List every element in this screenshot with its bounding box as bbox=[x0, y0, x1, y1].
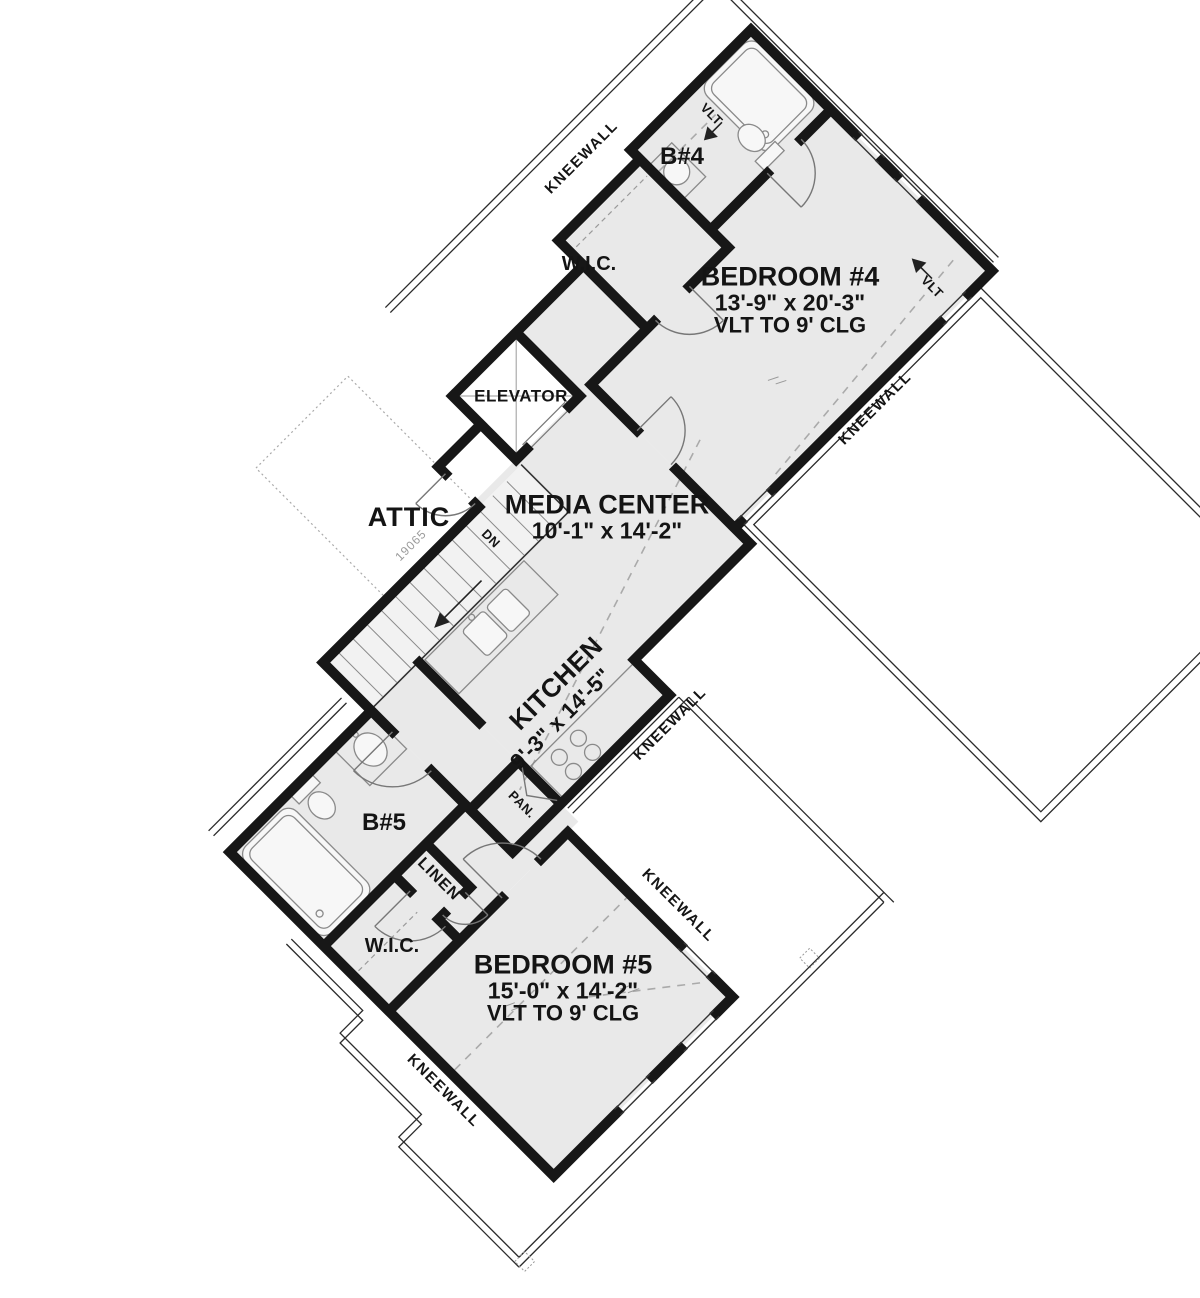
bath4-label: B#4 bbox=[660, 145, 704, 169]
room-ceiling: VLT TO 9' CLG bbox=[474, 1002, 653, 1024]
floor-plan-page: KNEEWALL KNEEWALL KNEEWALL KNEEWALL KNEE… bbox=[0, 0, 1200, 1298]
room-ceiling: VLT TO 9' CLG bbox=[701, 314, 880, 336]
rotated-plan: KNEEWALL KNEEWALL KNEEWALL KNEEWALL KNEE… bbox=[0, 0, 1200, 1298]
room-title: MEDIA CENTER bbox=[505, 492, 710, 520]
bath5-label: B#5 bbox=[362, 811, 406, 835]
wic5-label: W.I.C. bbox=[365, 936, 419, 956]
room-title: BEDROOM #4 bbox=[701, 263, 880, 291]
media-center-label-block: MEDIA CENTER 10'-1" x 14'-2" bbox=[505, 492, 710, 543]
room-dims: 15'-0" x 14'-2" bbox=[474, 979, 653, 1002]
floor-plan-drawing: KNEEWALL KNEEWALL KNEEWALL KNEEWALL KNEE… bbox=[0, 0, 1200, 1298]
bedroom4-label-block: BEDROOM #4 13'-9" x 20'-3" VLT TO 9' CLG bbox=[701, 263, 880, 336]
room-title: BEDROOM #5 bbox=[474, 951, 653, 979]
room-dims: 13'-9" x 20'-3" bbox=[701, 291, 880, 314]
elevator-label: ELEVATOR bbox=[474, 387, 568, 404]
attic-label: ATTIC bbox=[368, 504, 450, 532]
roof-marker-icon bbox=[800, 948, 820, 968]
bedroom5-label-block: BEDROOM #5 15'-0" x 14'-2" VLT TO 9' CLG bbox=[474, 951, 653, 1024]
wic4-label: W.I.C. bbox=[562, 254, 616, 274]
room-dims: 10'-1" x 14'-2" bbox=[505, 519, 710, 542]
